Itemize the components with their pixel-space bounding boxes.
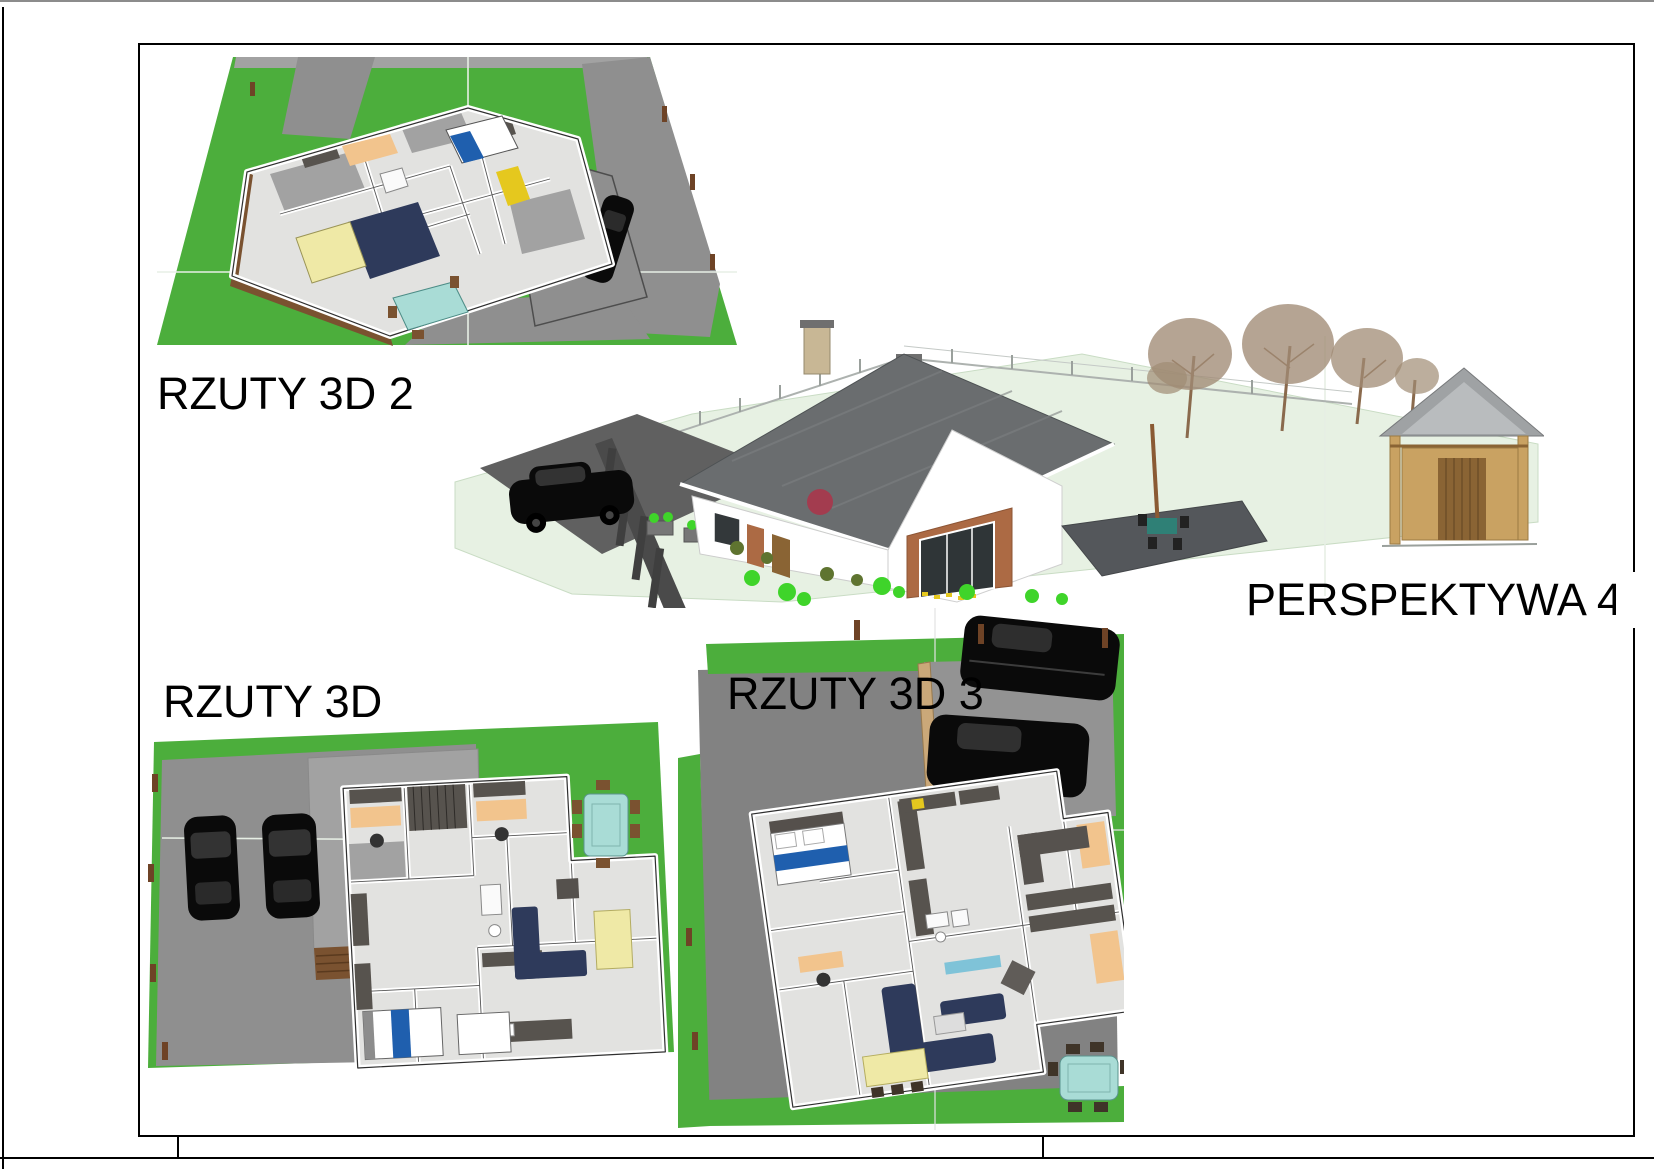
perspective-render [452, 296, 1544, 608]
table [594, 910, 633, 970]
label-perspektywa-4[interactable]: PERSPEKTYWA 4 [1246, 577, 1622, 622]
titleblock-divider-left [177, 1135, 179, 1158]
armchair [556, 878, 579, 899]
dining-table [584, 794, 628, 856]
label-rzuty-3d-2[interactable]: RZUTY 3D 2 [157, 371, 414, 416]
bath-fixture [480, 884, 502, 915]
viewport-perspektywa-4[interactable] [452, 296, 1544, 608]
sofa [514, 950, 587, 980]
red-shrub [807, 489, 833, 515]
wardrobe [473, 781, 526, 798]
terrace-table [1147, 518, 1177, 534]
wardrobe [349, 787, 402, 804]
label-rzuty-3d-3[interactable]: RZUTY 3D 3 [727, 671, 984, 716]
gazebo [1380, 368, 1544, 546]
wardrobe [354, 963, 372, 1010]
brick-pillar [747, 524, 764, 568]
drawing-sheet: { "sheet": { "title_labels": { "plan_3d_… [0, 0, 1654, 1169]
toilet [488, 924, 501, 937]
bath-fixture [951, 909, 969, 927]
viewport-rzuty-3d[interactable] [146, 716, 678, 1076]
desk [476, 799, 527, 822]
sheet-bottom-border [0, 1157, 1654, 1159]
titleblock-divider-right [1042, 1135, 1044, 1158]
wardrobe [351, 893, 370, 946]
perspective-label-clip [1616, 572, 1635, 628]
sheet-left-border [2, 7, 4, 1169]
chair [388, 306, 397, 318]
bed-cover [391, 1009, 411, 1058]
dining-table [1060, 1056, 1118, 1100]
chimney [804, 324, 830, 374]
bed [457, 1012, 511, 1055]
coffee-table [934, 1013, 966, 1035]
bath-fixture [925, 912, 949, 929]
chair [412, 330, 424, 339]
car [261, 813, 320, 920]
car [183, 815, 240, 922]
chair [450, 276, 459, 288]
cabinet [911, 798, 924, 810]
label-rzuty-3d[interactable]: RZUTY 3D [163, 679, 382, 724]
floor-plan-3d-render [146, 716, 678, 1076]
sheet-top-border [0, 0, 1654, 2]
desk [350, 805, 401, 828]
door [772, 534, 790, 578]
